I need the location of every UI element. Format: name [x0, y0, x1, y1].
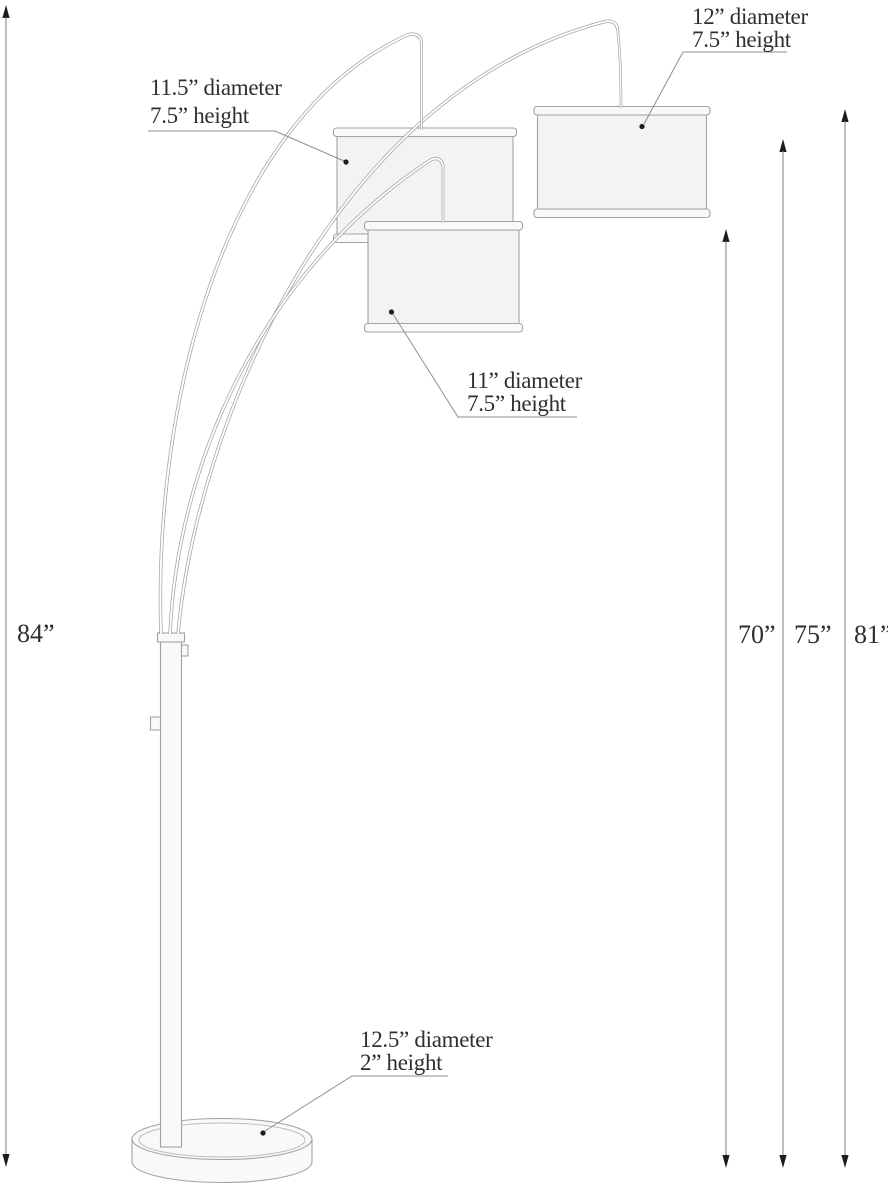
label-shade-top-left-line2: 7.5” height: [150, 103, 250, 128]
arrow-down-icon: [779, 1155, 786, 1168]
dimension-label-75: 75”: [794, 620, 832, 649]
shade-middle-bottom-rim: [365, 324, 523, 333]
leader-dot: [389, 309, 394, 314]
arrow-up-icon: [2, 5, 9, 18]
arrow-down-icon: [722, 1155, 729, 1168]
label-base-line1: 12.5” diameter: [360, 1027, 493, 1052]
arrow-down-icon: [2, 1154, 9, 1167]
arrow-up-icon: [841, 109, 848, 122]
label-base-line2: 2” height: [360, 1050, 443, 1075]
shade-middle: [365, 222, 523, 333]
dimension-label-70: 70”: [738, 620, 776, 649]
label-shade-top-right-line2: 7.5” height: [692, 27, 792, 52]
dimension-84: 84”: [2, 5, 54, 1167]
dimension-label-81: 81”: [854, 620, 888, 649]
label-shade-top-left-line1: 11.5” diameter: [150, 75, 282, 100]
lamp-base: [132, 1119, 312, 1183]
label-shade-middle-line2: 7.5” height: [467, 391, 567, 416]
callout-base: 12.5” diameter 2” height: [260, 1027, 493, 1136]
shade-top-right-bottom-rim: [534, 209, 710, 218]
arrow-down-icon: [841, 1155, 848, 1168]
dimmer-knob: [151, 717, 161, 730]
dimension-70: 70”: [722, 229, 775, 1168]
dimension-label-84: 84”: [17, 619, 55, 648]
pole-shaft: [161, 641, 182, 1147]
floor-lamp-dimension-diagram: 84” 70” 75” 81”: [0, 0, 888, 1185]
callout-shade-top-left: 11.5” diameter 7.5” height: [148, 75, 349, 165]
pole-collar: [158, 633, 185, 642]
leader-line: [148, 131, 344, 161]
leader-dot: [639, 124, 644, 129]
label-shade-middle-line1: 11” diameter: [467, 368, 583, 393]
rotary-switch: [182, 645, 189, 656]
shade-top-right: [534, 107, 710, 218]
base-top: [132, 1119, 312, 1160]
shade-top-left-body: [337, 137, 513, 235]
dimension-81: 81”: [841, 109, 888, 1168]
leader-dot: [260, 1130, 265, 1135]
shade-top-right-body: [538, 115, 707, 210]
arrow-up-icon: [779, 139, 786, 152]
arrow-up-icon: [722, 229, 729, 242]
leader-line: [265, 1076, 448, 1131]
lamp-pole: [151, 633, 189, 1147]
shade-top-left-top-rim: [334, 128, 517, 137]
leader-dot: [343, 159, 348, 164]
label-shade-top-right-line1: 12” diameter: [692, 4, 808, 29]
dimension-75: 75”: [779, 139, 831, 1168]
